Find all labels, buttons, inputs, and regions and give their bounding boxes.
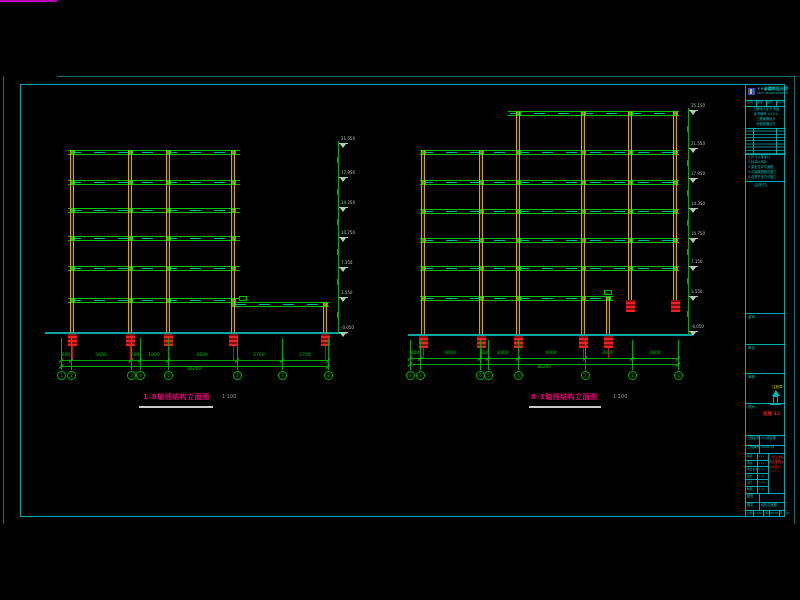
storey-height-mark (687, 160, 689, 166)
level-flag-triangle (340, 208, 346, 212)
foundation-extension-line (423, 348, 424, 358)
grid-bubble: 6 (233, 371, 242, 380)
structural-column (166, 150, 170, 333)
level-flag-triangle (340, 298, 346, 302)
grid-bubble: 3 (127, 371, 136, 380)
level-value: 17.950 (691, 172, 705, 176)
grid-bubble: 5 (164, 371, 173, 380)
floor-beam (508, 111, 679, 116)
level-value: -0.050 (341, 326, 354, 330)
floor-beam (68, 150, 240, 155)
beam-fill (70, 238, 238, 239)
storey-height-mark (687, 249, 689, 255)
floor-beam (420, 238, 679, 243)
structural-column (128, 150, 132, 333)
foundation-extension-line (233, 346, 234, 360)
drawing-layer: 1234567860036006001800420027002700162002… (0, 0, 800, 600)
beam-fill (422, 268, 677, 269)
dimension-text: 2700 (253, 354, 264, 359)
floor-beam (420, 209, 679, 214)
beam-fill (422, 240, 677, 241)
level-value: 17.950 (341, 171, 355, 175)
level-flag-triangle (690, 149, 696, 153)
floor-beam (68, 236, 240, 241)
grid-bubble: 2 (67, 371, 76, 380)
dimension-text: 1800 (497, 352, 508, 357)
dimension-total-text: 16200 (187, 368, 201, 373)
structural-column (628, 111, 632, 300)
foundation-extension-line (325, 346, 326, 360)
structural-column (479, 150, 483, 334)
level-value: 7.150 (691, 260, 702, 264)
foundation-block (68, 334, 77, 346)
storey-height-mark (337, 189, 339, 195)
grid-bubble: 3 (581, 371, 590, 380)
beam-tag (604, 290, 612, 295)
storey-height-mark (687, 311, 689, 317)
beam-fill (422, 152, 677, 153)
beam-tag (239, 296, 247, 301)
storey-height-mark (337, 157, 339, 163)
dimension-total-text: 16200 (537, 366, 551, 371)
elevation-title: 1-8轴线结构立面图 (143, 394, 210, 401)
grid-bubble: 4 (136, 371, 145, 380)
elevation-title-underline (139, 406, 213, 408)
beam-fill (422, 211, 677, 212)
storey-height-mark (337, 219, 339, 225)
floor-beam (68, 180, 240, 185)
grid-bubble: 5 (484, 371, 493, 380)
foundation-block (604, 336, 613, 348)
structural-column (516, 111, 520, 334)
level-value: 21.550 (691, 142, 705, 146)
beam-fill (422, 182, 677, 183)
floor-beam (420, 150, 679, 155)
foundation-block (671, 300, 680, 312)
level-flag-triangle (690, 209, 696, 213)
dimension-text: 2800 (649, 352, 660, 357)
elevation-scale: 1:100 (222, 395, 236, 400)
beam-fill (70, 210, 238, 211)
storey-height-mark (687, 190, 689, 196)
elevation-title: 8-1轴线结构立面图 (531, 394, 598, 401)
floor-beam (68, 298, 240, 303)
dimension-text: 600 (62, 354, 71, 359)
ground-line (45, 332, 347, 334)
level-value: 14.350 (341, 201, 355, 205)
structural-column (421, 150, 425, 334)
dimension-line (410, 358, 678, 359)
ground-line (408, 334, 692, 336)
dimension-text: 4000 (545, 352, 556, 357)
level-flag-triangle (690, 267, 696, 271)
grid-bubble: 7 (278, 371, 287, 380)
level-flag-triangle (690, 332, 696, 336)
elevation-title-underline (529, 406, 601, 408)
grid-bubble: 8 (406, 371, 415, 380)
beam-fill (70, 268, 238, 269)
structural-column (581, 111, 585, 334)
storey-height-mark (337, 279, 339, 285)
level-flag-triangle (340, 333, 346, 337)
level-value: 25.150 (691, 104, 705, 108)
dimension-text: 600 (131, 354, 140, 359)
dimension-text: 600 (411, 352, 420, 357)
grid-bubble: 1 (57, 371, 66, 380)
dimension-line (61, 360, 328, 361)
foundation-block (477, 336, 486, 348)
beam-fill (510, 113, 677, 114)
cad-sheet-canvas[interactable]: ××省建筑设计院 ARCH DESIGN INSTITUTE (会签栏) 注册章… (0, 0, 800, 600)
floor-beam (233, 302, 329, 307)
dimension-text: 600 (480, 352, 489, 357)
structural-column (70, 150, 74, 333)
level-flag-triangle (340, 178, 346, 182)
grid-bubble: 7 (416, 371, 425, 380)
structural-column (606, 297, 610, 334)
foundation-block (579, 336, 588, 348)
level-flag-triangle (690, 239, 696, 243)
level-flag-triangle (690, 297, 696, 301)
dimension-text: 2700 (299, 354, 310, 359)
level-value: 21.550 (341, 137, 355, 141)
dimension-text: 3600 (95, 354, 106, 359)
level-value: 7.150 (341, 261, 352, 265)
structural-column (673, 111, 677, 300)
floor-beam (420, 180, 679, 185)
level-value: 14.350 (691, 202, 705, 206)
grid-bubble: 1 (674, 371, 683, 380)
storey-height-mark (687, 220, 689, 226)
level-value: 3.550 (341, 291, 352, 295)
level-flag-triangle (340, 238, 346, 242)
level-value: -0.050 (691, 325, 704, 329)
dimension-text: 3600 (444, 352, 455, 357)
storey-height-mark (337, 312, 339, 318)
beam-fill (70, 182, 238, 183)
grid-bubble: 8 (324, 371, 333, 380)
floor-beam (420, 266, 679, 271)
dimension-text: 4200 (196, 354, 207, 359)
dimension-text: 2800 (602, 352, 613, 357)
storey-height-mark (687, 278, 689, 284)
foundation-extension-line (583, 348, 584, 358)
level-flag-triangle (690, 111, 696, 115)
elevation-scale: 1:100 (613, 395, 627, 400)
level-flag-triangle (340, 144, 346, 148)
structural-column (323, 303, 327, 333)
level-flag-triangle (690, 179, 696, 183)
level-value: 10.750 (691, 232, 705, 236)
level-value: 3.550 (691, 290, 702, 294)
grid-bubble: 2 (628, 371, 637, 380)
dimension-text: 1800 (148, 354, 159, 359)
beam-fill (70, 300, 238, 301)
foundation-block (626, 300, 635, 312)
beam-fill (235, 304, 327, 305)
beam-fill (70, 152, 238, 153)
grid-bubble: 4 (514, 371, 523, 380)
structural-column (231, 150, 235, 333)
storey-height-mark (687, 126, 689, 132)
level-value: 10.750 (341, 231, 355, 235)
floor-beam (68, 266, 240, 271)
level-flag-triangle (340, 268, 346, 272)
floor-beam (68, 208, 240, 213)
storey-height-mark (337, 249, 339, 255)
